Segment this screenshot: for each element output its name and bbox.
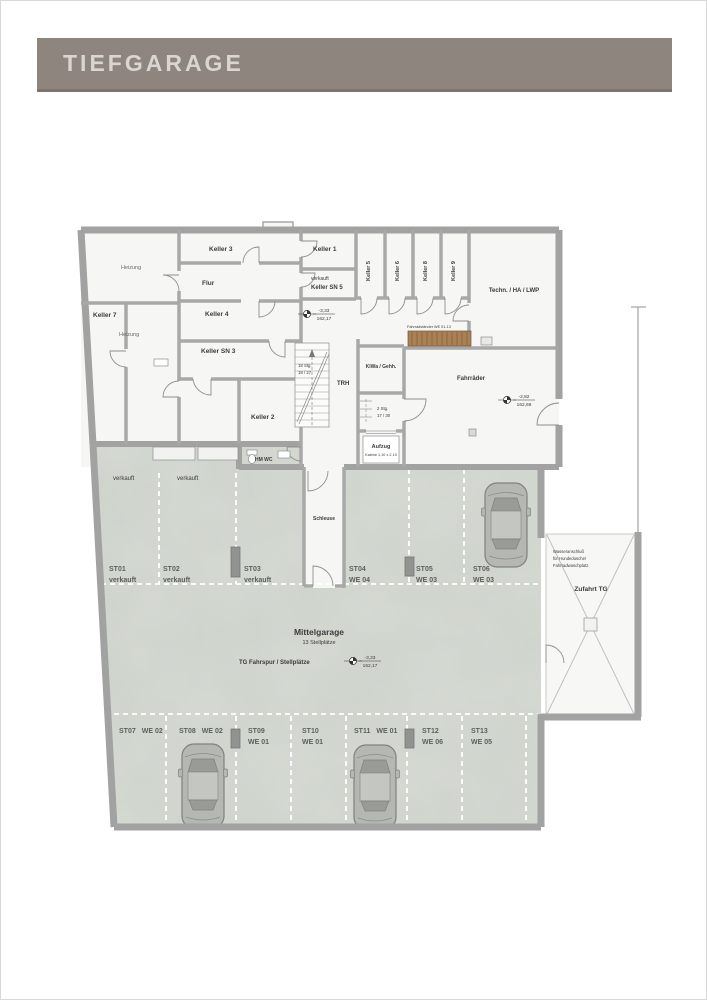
label-keller4: Keller 4 — [205, 311, 229, 318]
label-smallstair-ratio: 17 / 30 — [377, 413, 391, 418]
level-value: -3,33 — [319, 308, 330, 314]
label-keller8: Keller 8 — [423, 261, 429, 281]
page: TIEFGARAGE — [0, 0, 707, 1000]
storage-rack — [198, 447, 238, 460]
label-stair-ratio: 18 / 27 — [298, 370, 312, 375]
label-keller-sn3: Keller SN 3 — [201, 348, 236, 355]
stall-sub: WE 01 — [376, 728, 397, 735]
stall-sub: verkauft — [244, 577, 272, 584]
stall-id: ST04 — [349, 566, 366, 573]
stall-id: ST10 — [302, 728, 319, 735]
car-st06 — [482, 483, 531, 567]
level-value: -3,33 — [365, 655, 376, 661]
stall-sub: WE 06 — [422, 739, 443, 746]
ramp-center-post — [584, 618, 597, 631]
technik-unit — [481, 337, 492, 345]
label-keller7: Keller 7 — [93, 312, 117, 319]
car-st11 — [351, 745, 400, 829]
label-garage-subtitle: 13 Stellplätze — [302, 640, 335, 646]
main-staircase — [295, 343, 329, 427]
pillar — [231, 547, 240, 577]
storage-rack — [153, 447, 195, 460]
label-fahrraeder: Fahrräder — [457, 376, 486, 382]
label-note-2: für Hundedusche/ — [553, 556, 587, 561]
label-heizung-left: Heizung — [119, 332, 139, 338]
stall-id: ST03 — [244, 566, 261, 573]
stall-sub: WE 01 — [248, 739, 269, 746]
stall-id: ST12 — [422, 728, 439, 735]
label-keller-sn5: Keller SN 5 — [311, 285, 343, 291]
pillar — [231, 729, 240, 748]
label-ramp: Zufahrt TG — [574, 586, 607, 593]
wc-sink — [278, 451, 290, 458]
stall-sub: WE 04 — [349, 577, 370, 584]
label-keller9: Keller 9 — [451, 261, 457, 281]
level-elevation: 162,17 — [317, 316, 332, 322]
stall-id: ST05 — [416, 566, 433, 573]
stall-id: ST07 — [119, 728, 136, 735]
label-technik: Techn. / HA / LWP — [489, 288, 539, 294]
label-hm-wc: HM WC — [255, 457, 273, 463]
level-elevation: 162,69 — [517, 402, 532, 408]
label-smallstair-steps: 2 Stg. — [377, 406, 388, 411]
label-sold-right: verkauft — [177, 476, 199, 482]
bike-rack — [408, 331, 471, 346]
stall-id: ST13 — [471, 728, 488, 735]
label-stair-steps: 18 Stg. — [298, 363, 312, 368]
stall-sub: WE 02 — [202, 728, 223, 735]
radiator — [154, 359, 168, 366]
stall-sub: WE 02 — [142, 728, 163, 735]
stall-sub: WE 03 — [416, 577, 437, 584]
stall-label-st11: ST11WE 01 — [354, 728, 397, 735]
stall-sub: WE 03 — [473, 577, 494, 584]
stall-label-st08: ST08WE 02 — [179, 728, 223, 735]
pillar — [405, 557, 414, 576]
label-keller2: Keller 2 — [251, 414, 275, 421]
label-verkauft-note: verkauft — [311, 276, 329, 282]
car-st08 — [179, 744, 228, 828]
stall-id: ST11 — [354, 728, 370, 735]
label-note-3: Fahrradwaschplatz — [553, 563, 588, 568]
label-fahrradstaender: Fahrradständer WE 01-13 — [407, 325, 451, 329]
pillar — [405, 729, 414, 748]
stall-sub: WE 01 — [302, 739, 323, 746]
stall-sub: WE 05 — [471, 739, 492, 746]
stall-id: ST09 — [248, 728, 265, 735]
label-aufzug: Aufzug — [372, 444, 391, 450]
label-keller6: Keller 6 — [395, 261, 401, 281]
level-elevation: 162,17 — [363, 663, 378, 669]
label-note-1: Wasseranschluß — [553, 549, 584, 554]
label-trh: TRH — [337, 381, 349, 387]
label-keller5: Keller 5 — [366, 261, 372, 281]
floor-drain — [469, 429, 476, 436]
stall-id: ST06 — [473, 566, 490, 573]
stall-label-st07: ST07WE 02 — [119, 728, 163, 735]
label-kiwa: KiWa / Gehh. — [366, 364, 397, 370]
label-aufzug-sub: Kabine 1,10 x 2,10 — [365, 453, 397, 457]
label-keller3: Keller 3 — [209, 246, 233, 253]
label-heizung-top: Heizung — [121, 265, 141, 271]
label-garage-title: Mittelgarage — [294, 627, 344, 637]
label-flur: Flur — [202, 280, 215, 287]
label-schleuse: Schleuse — [313, 516, 335, 522]
stall-id: ST01 — [109, 566, 126, 573]
floorplan: -3,33 162,17 -2,82 162,69 -3,33 162,17 H… — [1, 1, 707, 1000]
label-garage-lane: TG Fahrspur / Stellplätze — [239, 660, 310, 666]
stall-id: ST08 — [179, 728, 196, 735]
level-value: -2,82 — [519, 394, 530, 400]
schleuse-floor — [304, 467, 344, 588]
stall-sub: verkauft — [109, 577, 137, 584]
stall-sub: verkauft — [163, 577, 191, 584]
label-keller1: Keller 1 — [313, 246, 337, 253]
stall-id: ST02 — [163, 566, 180, 573]
label-sold-left: verkauft — [113, 476, 135, 482]
